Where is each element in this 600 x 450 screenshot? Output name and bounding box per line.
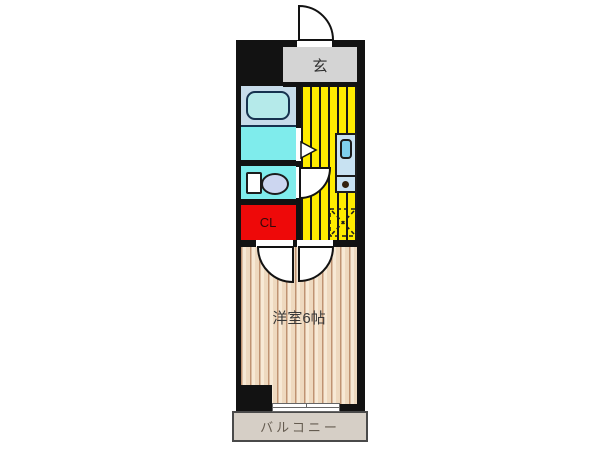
toilet-door-swing-icon (300, 168, 330, 198)
closet-door-swing-icon (258, 247, 293, 282)
entrance-opening (297, 41, 332, 47)
kitchen-opening (297, 240, 333, 247)
kitchen-door-swing-icon (299, 247, 333, 281)
door-overlay (0, 0, 600, 450)
washroom-door-icon (301, 142, 316, 158)
entrance-door-swing-icon (299, 6, 333, 40)
refrigerator-space-icon (330, 209, 356, 236)
closet-opening (256, 240, 293, 247)
floorplan-canvas: 玄 CL 洋室6帖 バルコニー (0, 0, 600, 450)
